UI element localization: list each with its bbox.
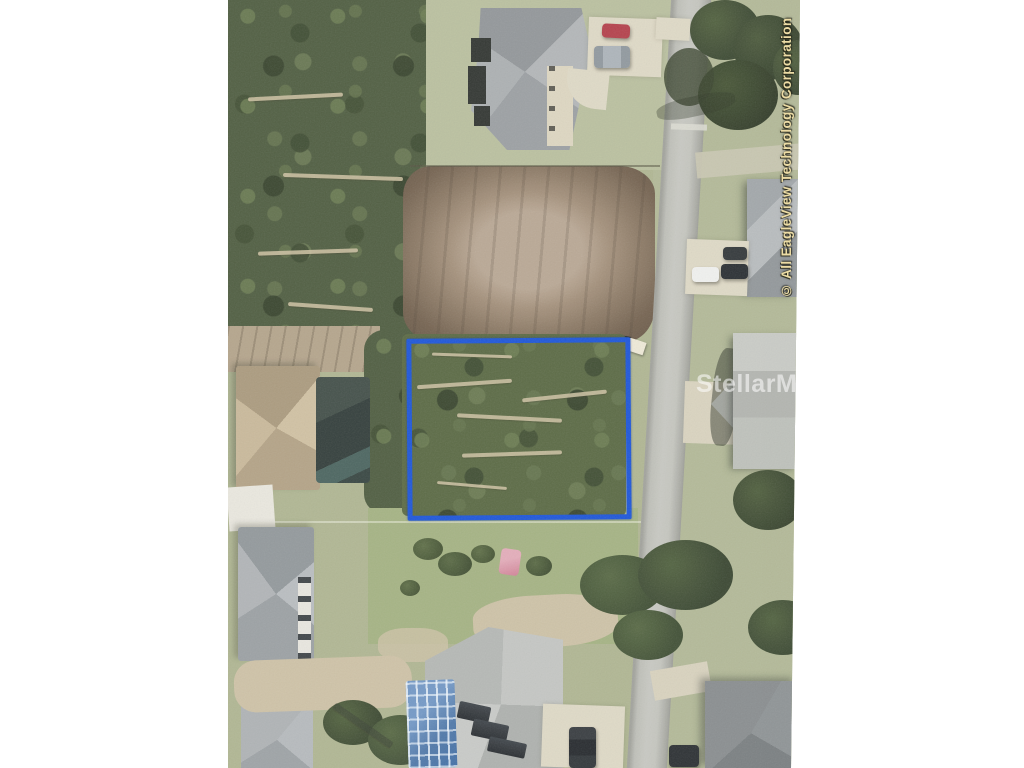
cleared-dirt-lot <box>403 166 655 342</box>
shrub <box>471 545 495 563</box>
lanai-strip <box>298 577 311 661</box>
fence-line <box>242 521 642 523</box>
dark-car <box>721 264 748 279</box>
dark-car <box>569 727 596 768</box>
shrub <box>526 556 552 576</box>
red-car <box>602 23 631 38</box>
pink-yard-object <box>498 548 521 577</box>
roof-shadow-notch <box>468 66 486 104</box>
tan-roof-house <box>236 366 320 490</box>
shrub <box>413 538 443 560</box>
roof-shadow-notch <box>474 106 490 126</box>
gray-roof-house-mid-right <box>733 333 800 469</box>
gray-car <box>594 46 630 68</box>
driveway-apron <box>655 17 690 41</box>
roof-shadow-notch <box>471 38 491 62</box>
fence-line <box>410 165 660 167</box>
tree-canopy <box>613 610 683 660</box>
eagleview-copyright: © All EagleView Technology Corporation <box>779 0 799 298</box>
lot-boundary-overlay <box>406 337 631 521</box>
dark-car <box>669 745 699 767</box>
gray-roof-house-bottom-right <box>705 681 797 768</box>
sandy-yard <box>233 655 413 713</box>
dark-car <box>723 247 747 260</box>
shrub <box>400 580 420 596</box>
screened-pool-enclosure-dark <box>316 377 370 483</box>
shrub <box>438 552 472 576</box>
concrete-driveway <box>228 484 275 531</box>
mls-watermark: StellarMLS <box>696 370 800 399</box>
aerial-photo: StellarMLS © All EagleView Technology Co… <box>228 0 800 768</box>
white-car <box>692 267 719 282</box>
screened-pool-enclosure-blue <box>405 679 457 768</box>
street-seam <box>671 123 707 130</box>
